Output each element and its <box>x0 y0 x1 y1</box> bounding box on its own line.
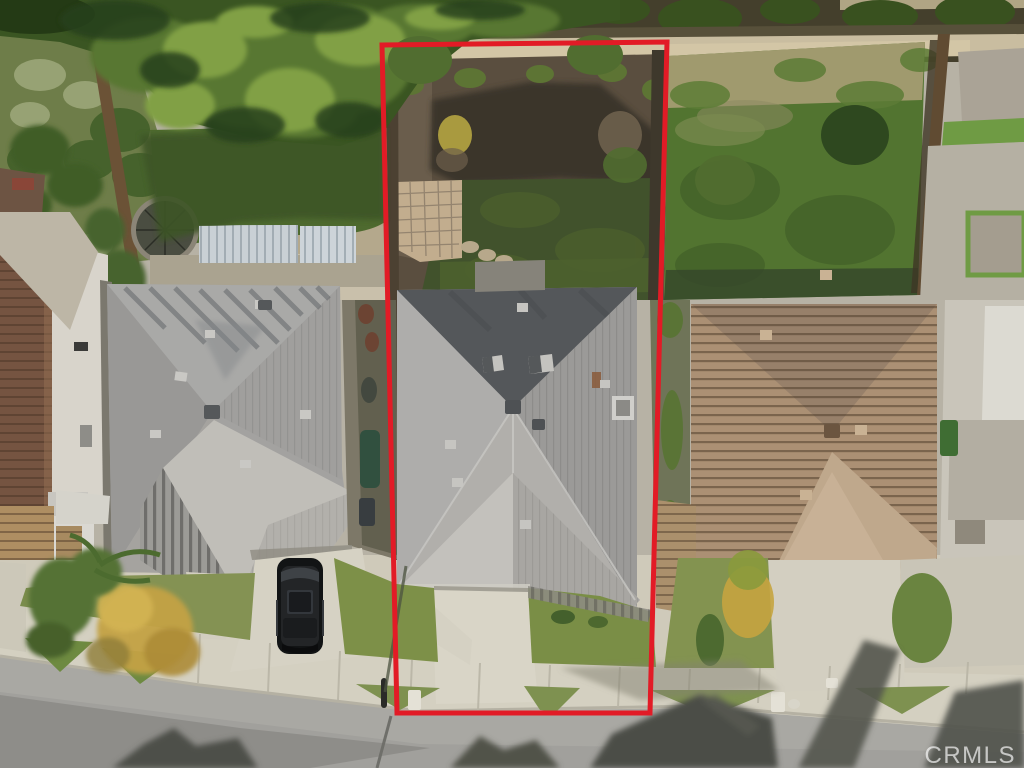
svg-text:CRMLS: CRMLS <box>924 742 1016 768</box>
